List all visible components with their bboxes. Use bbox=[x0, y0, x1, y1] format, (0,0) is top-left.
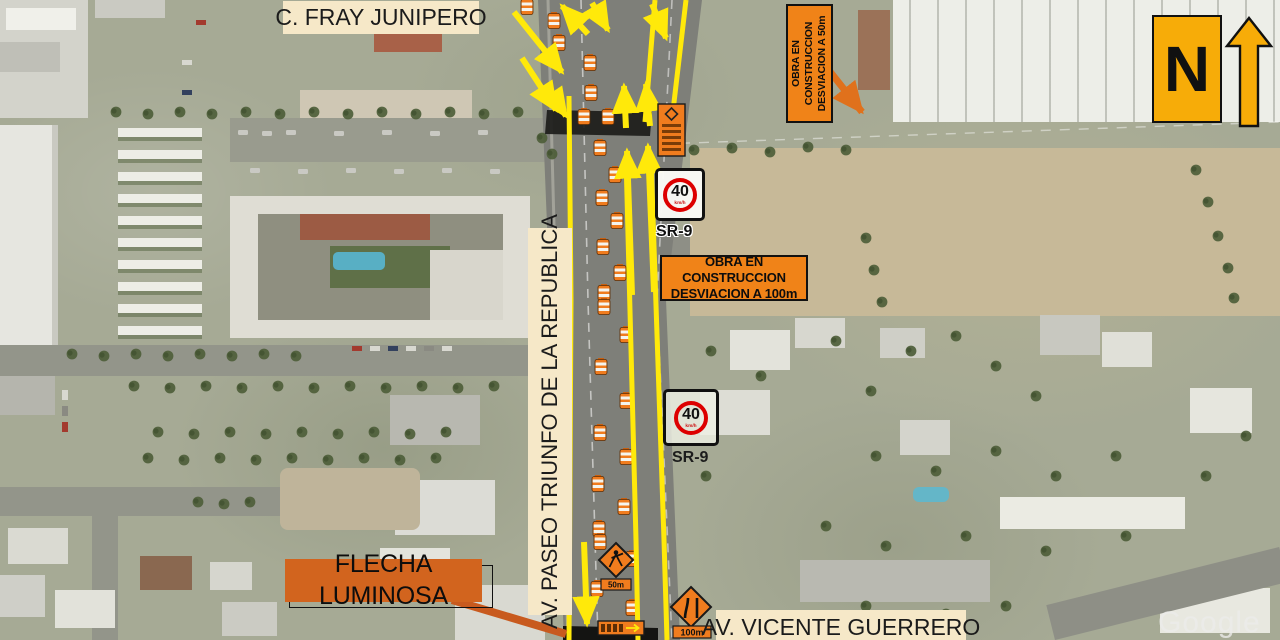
traffic-detour-map: 50m 100m C. FRAY JUNIPERO bbox=[0, 0, 1280, 640]
arrow-board bbox=[598, 621, 644, 635]
parking-cars bbox=[62, 20, 500, 432]
obra-100-line2: DESVIACION A 100m bbox=[671, 286, 797, 302]
obra-50-line2: DESVIACION A 50m bbox=[816, 16, 829, 112]
north-arrow-icon bbox=[1227, 18, 1271, 126]
obra-100-line1: OBRA EN CONSTRUCCION bbox=[662, 254, 806, 287]
narrows-plate-label: 100m bbox=[680, 628, 703, 638]
street-label-fray-junipero: C. FRAY JUNIPERO bbox=[283, 1, 479, 34]
speed-ring: 40 km/h bbox=[674, 401, 708, 435]
map-attribution: Google bbox=[1158, 606, 1261, 640]
signboard-vertical bbox=[658, 104, 685, 156]
speed-limit-sign-1: 40 km/h bbox=[655, 168, 705, 221]
speed-ring: 40 km/h bbox=[663, 178, 697, 212]
flecha-luminosa-callout: FLECHA LUMINOSA bbox=[285, 559, 482, 602]
sign-code-sr9-1: SR-9 bbox=[656, 223, 692, 241]
worker-plate-label: 50m bbox=[608, 581, 624, 590]
obra-50-callout: OBRA EN CONSTRUCCION DESVIACION A 50m bbox=[786, 4, 833, 123]
north-indicator: N bbox=[1152, 15, 1222, 123]
street-label-paseo-triunfo: AV. PASEO TRIUNFO DE LA REPUBLICA bbox=[528, 228, 572, 615]
speed-limit-sign-2: 40 km/h bbox=[663, 389, 719, 446]
street-label-vicente-guerrero: AV. VICENTE GUERRERO bbox=[716, 610, 966, 640]
annotation-layer: 50m 100m bbox=[0, 0, 1280, 640]
cross-road-centerline bbox=[661, 122, 1280, 144]
obra-50-line1: OBRA EN CONSTRUCCION bbox=[790, 6, 816, 121]
sign-code-sr9-2: SR-9 bbox=[672, 449, 708, 467]
obra-100-callout: OBRA EN CONSTRUCCION DESVIACION A 100m bbox=[660, 255, 808, 301]
